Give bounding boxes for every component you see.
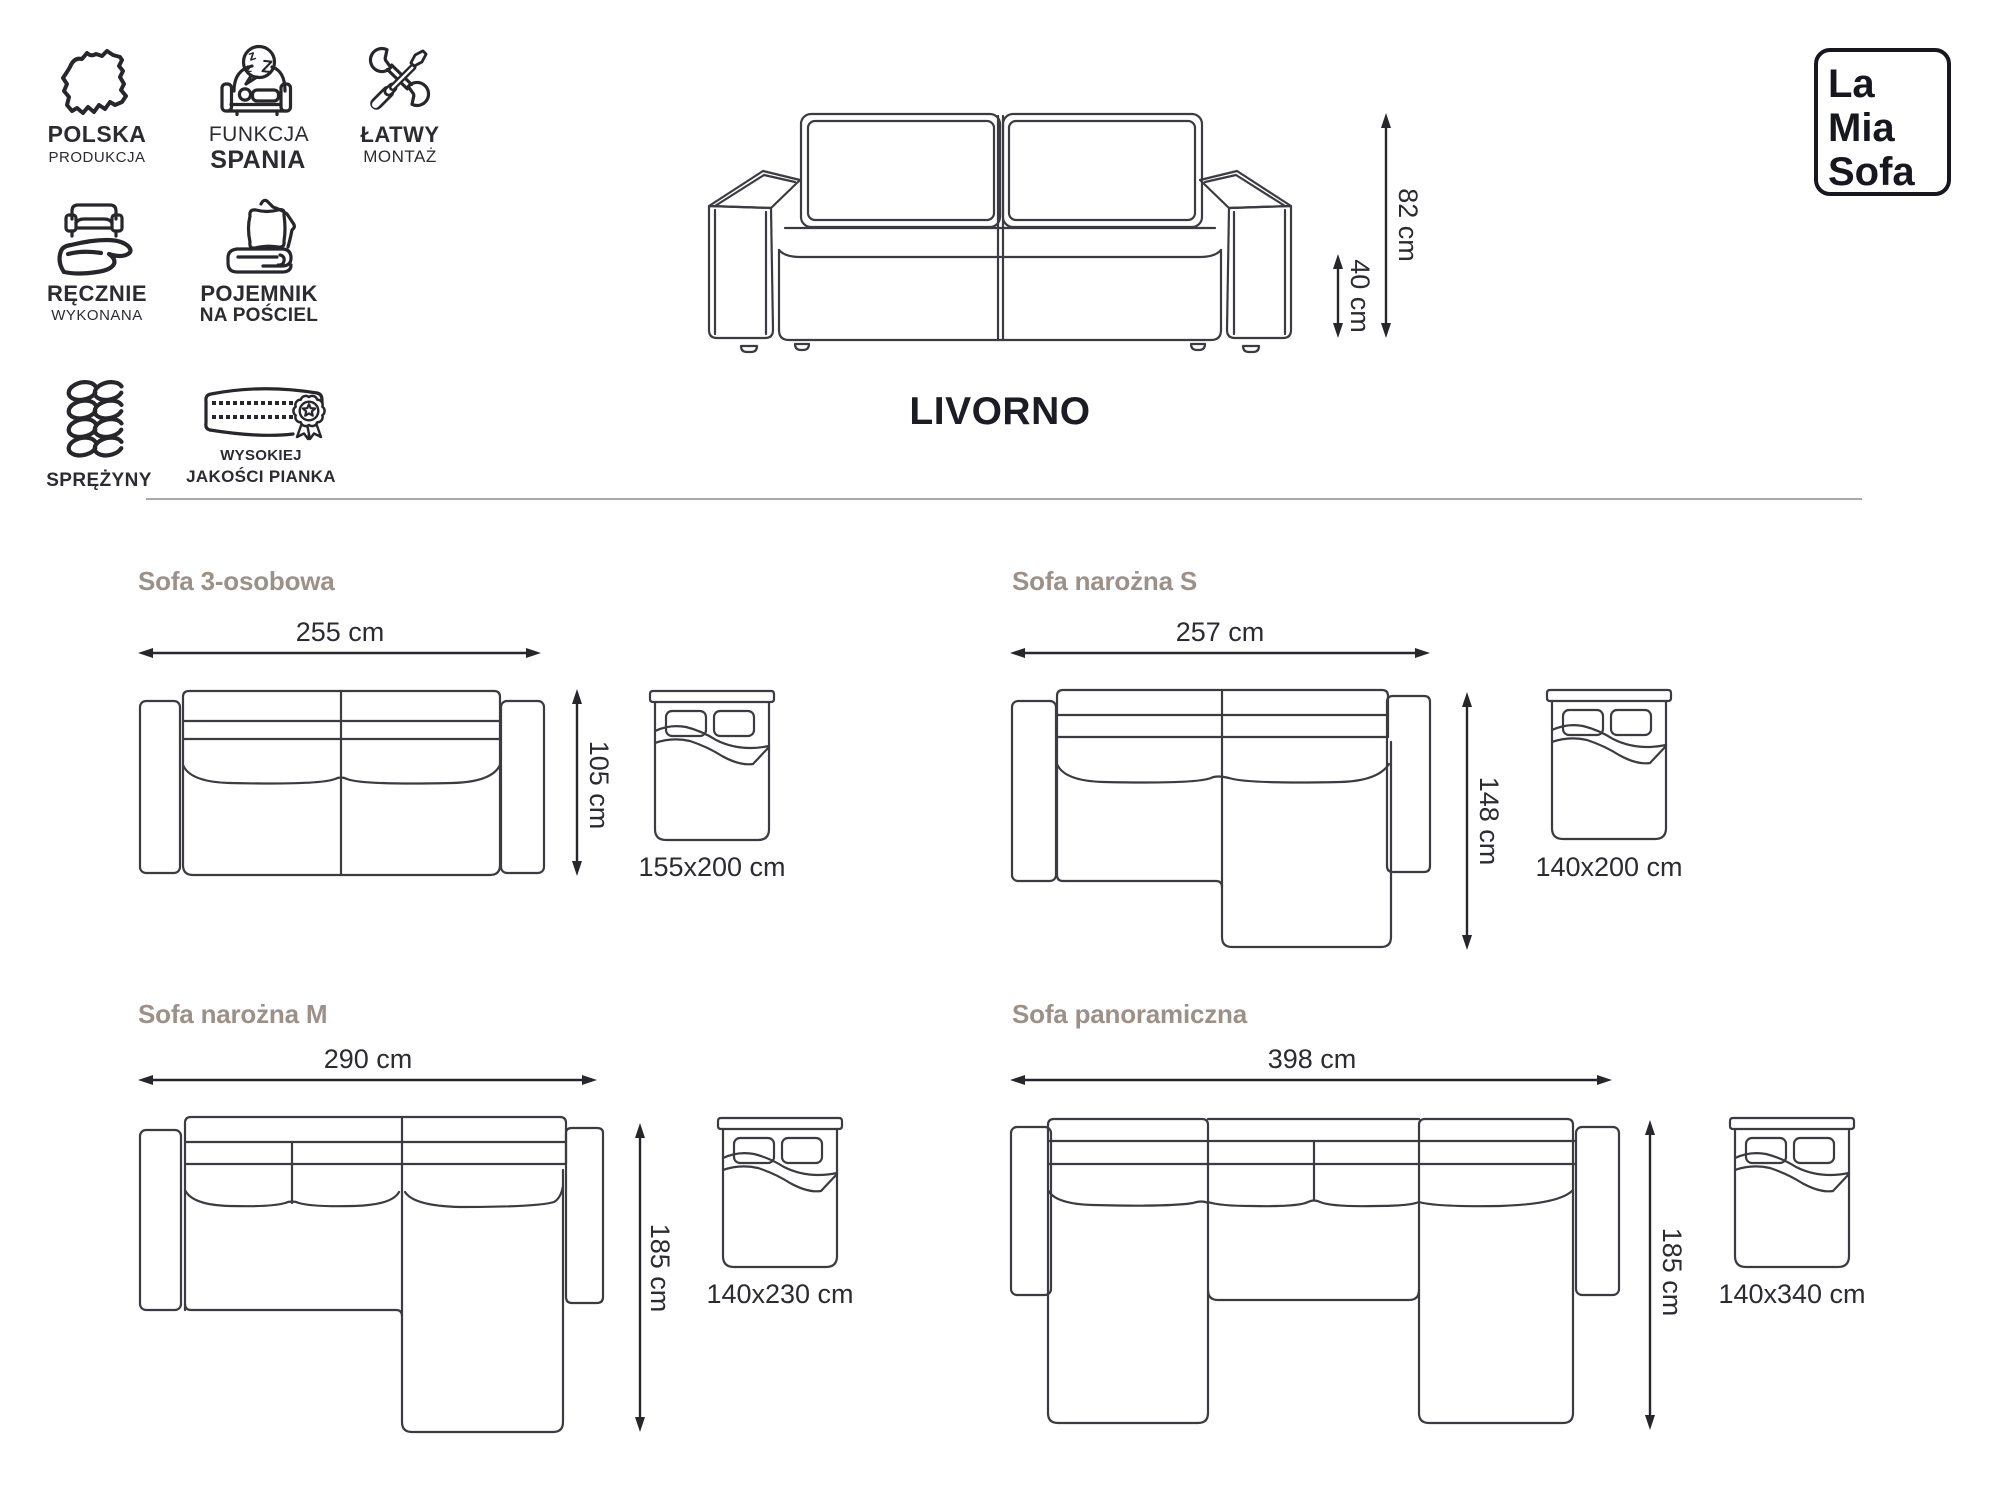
svg-text:PRODUKCJA: PRODUKCJA bbox=[48, 149, 145, 166]
svg-text:z: z bbox=[246, 61, 252, 75]
svg-text:Sofa narożna M: Sofa narożna M bbox=[138, 999, 327, 1029]
svg-text:La: La bbox=[1828, 62, 1875, 106]
svg-text:140x200 cm: 140x200 cm bbox=[1535, 852, 1682, 882]
svg-text:Sofa 3-osobowa: Sofa 3-osobowa bbox=[138, 566, 335, 596]
svg-text:RĘCZNIE: RĘCZNIE bbox=[47, 281, 147, 306]
svg-text:FUNKCJA: FUNKCJA bbox=[209, 123, 309, 146]
svg-text:SPRĘŻYNY: SPRĘŻYNY bbox=[46, 470, 152, 491]
svg-text:Sofa narożna S: Sofa narożna S bbox=[1012, 566, 1197, 596]
svg-text:SPANIA: SPANIA bbox=[210, 146, 306, 174]
svg-text:105 cm: 105 cm bbox=[584, 741, 614, 830]
svg-text:POLSKA: POLSKA bbox=[48, 121, 147, 147]
svg-text:185 cm: 185 cm bbox=[645, 1224, 675, 1313]
svg-text:WYKONANA: WYKONANA bbox=[51, 307, 143, 324]
svg-text:Z: Z bbox=[261, 56, 274, 77]
svg-text:MONTAŻ: MONTAŻ bbox=[363, 147, 437, 166]
svg-text:NA POŚCIEL: NA POŚCIEL bbox=[200, 304, 319, 326]
svg-text:40 cm: 40 cm bbox=[1345, 259, 1375, 333]
svg-text:185 cm: 185 cm bbox=[1657, 1228, 1687, 1317]
svg-text:255 cm: 255 cm bbox=[296, 617, 385, 647]
svg-text:Sofa: Sofa bbox=[1828, 150, 1915, 194]
svg-text:398 cm: 398 cm bbox=[1268, 1044, 1357, 1074]
svg-text:257 cm: 257 cm bbox=[1176, 617, 1265, 647]
svg-text:WYSOKIEJ: WYSOKIEJ bbox=[220, 447, 302, 464]
svg-text:ŁATWY: ŁATWY bbox=[360, 122, 439, 147]
svg-text:82 cm: 82 cm bbox=[1393, 188, 1423, 262]
svg-text:POJEMNIK: POJEMNIK bbox=[200, 281, 317, 306]
svg-text:LIVORNO: LIVORNO bbox=[909, 390, 1090, 433]
svg-text:155x200 cm: 155x200 cm bbox=[638, 852, 785, 882]
svg-text:JAKOŚCI PIANKA: JAKOŚCI PIANKA bbox=[186, 467, 336, 486]
svg-text:290 cm: 290 cm bbox=[324, 1044, 413, 1074]
svg-text:140x340 cm: 140x340 cm bbox=[1718, 1279, 1865, 1309]
svg-text:140x230 cm: 140x230 cm bbox=[706, 1279, 853, 1309]
svg-text:Sofa panoramiczna: Sofa panoramiczna bbox=[1012, 999, 1248, 1029]
svg-text:148 cm: 148 cm bbox=[1474, 777, 1504, 866]
svg-text:Mia: Mia bbox=[1828, 106, 1895, 150]
